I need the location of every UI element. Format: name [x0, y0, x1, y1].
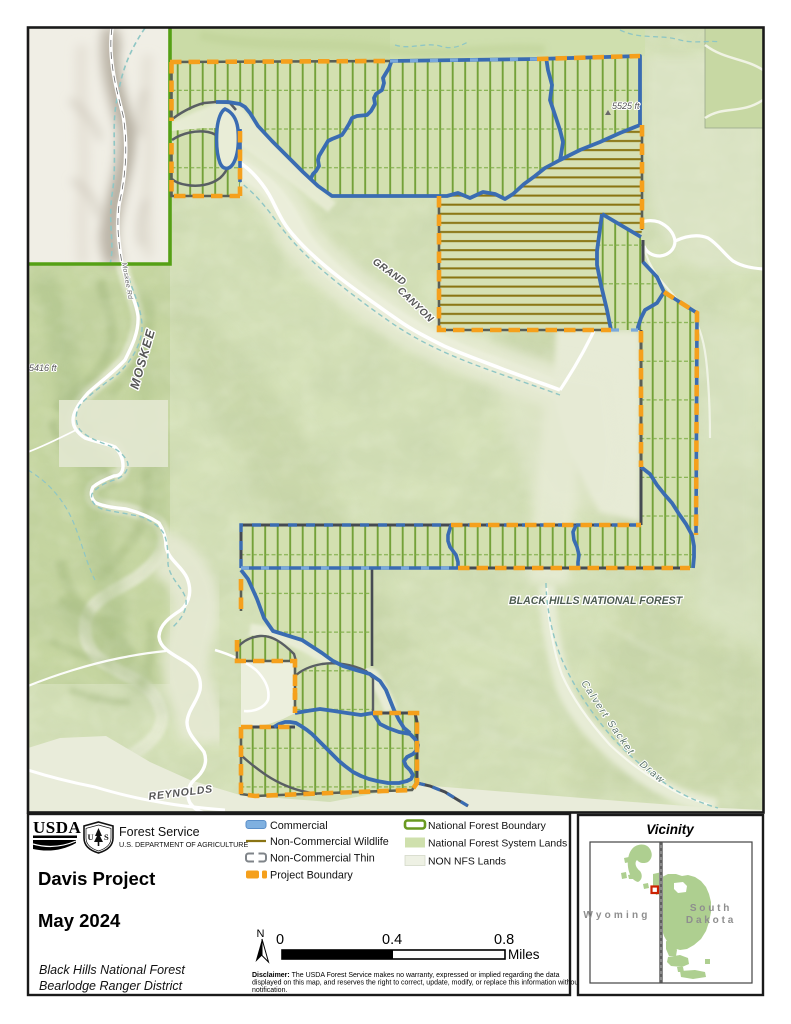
svg-text:Dakota: Dakota [686, 915, 736, 926]
svg-text:USDA: USDA [33, 818, 82, 837]
svg-text:N: N [257, 928, 265, 940]
svg-text:South: South [690, 903, 732, 914]
svg-text:0: 0 [276, 932, 284, 948]
svg-text:Disclaimer: The USDA Forest Se: Disclaimer: The USDA Forest Service make… [252, 972, 560, 979]
svg-text:Commercial: Commercial [270, 820, 328, 832]
svg-text:0.8: 0.8 [494, 932, 514, 948]
svg-text:0.4: 0.4 [382, 932, 402, 948]
svg-text:Wyoming: Wyoming [583, 910, 650, 921]
svg-text:NON NFS Lands: NON NFS Lands [428, 857, 506, 868]
svg-text:U.S. DEPARTMENT OF AGRICULTURE: U.S. DEPARTMENT OF AGRICULTURE [119, 840, 248, 849]
svg-text:Black Hills National Forest: Black Hills National Forest [39, 963, 185, 977]
svg-text:National Forest Boundary: National Forest Boundary [428, 821, 547, 832]
svg-text:Project Boundary: Project Boundary [270, 870, 353, 882]
svg-text:Forest Service: Forest Service [119, 825, 200, 839]
svg-text:May 2024: May 2024 [38, 910, 121, 931]
svg-text:National Forest System Lands: National Forest System Lands [428, 839, 567, 850]
svg-text:Non-Commercial Wildlife: Non-Commercial Wildlife [270, 836, 389, 848]
svg-text:U: U [88, 832, 94, 842]
svg-text:Bearlodge Ranger District: Bearlodge Ranger District [39, 979, 183, 993]
svg-text:Davis Project: Davis Project [38, 868, 155, 889]
svg-text:displayed on this map, and res: displayed on this map, and reserves the … [252, 980, 580, 987]
svg-text:5416 ft: 5416 ft [29, 363, 57, 373]
svg-text:Miles: Miles [508, 947, 540, 962]
svg-text:Vicinity: Vicinity [646, 822, 695, 837]
svg-text:5525 ft: 5525 ft [612, 101, 640, 111]
svg-text:S: S [104, 832, 109, 842]
svg-text:notification.: notification. [252, 987, 287, 994]
svg-text:Non-Commercial Thin: Non-Commercial Thin [270, 853, 375, 865]
svg-text:BLACK HILLS NATIONAL FOREST: BLACK HILLS NATIONAL FOREST [509, 595, 684, 607]
